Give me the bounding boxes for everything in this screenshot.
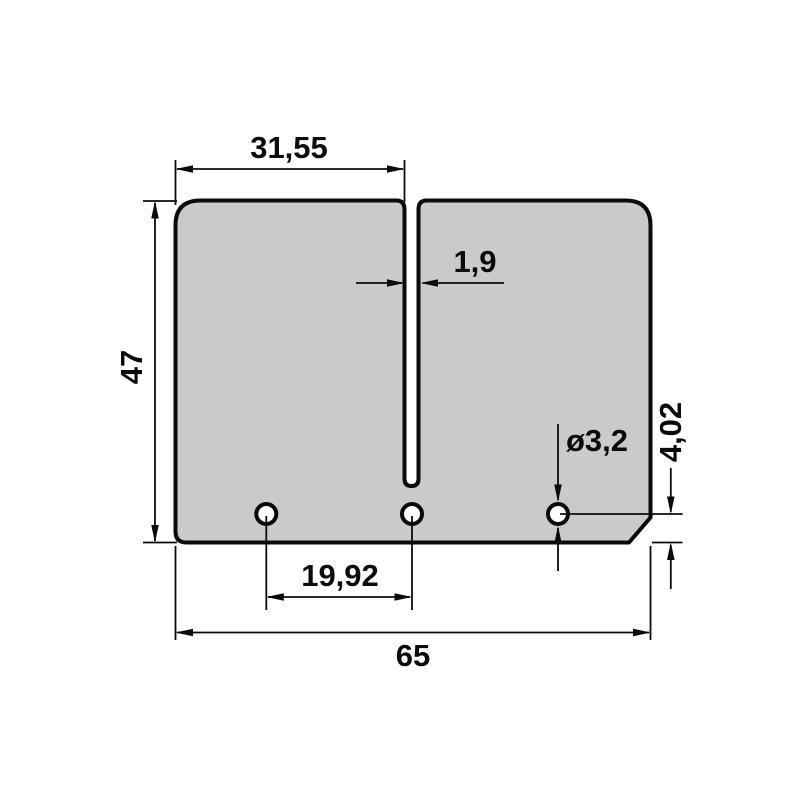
svg-text:31,55: 31,55 (250, 130, 328, 165)
svg-text:65: 65 (396, 638, 430, 673)
svg-text:4,02: 4,02 (653, 402, 688, 462)
svg-text:47: 47 (114, 350, 149, 384)
svg-text:19,92: 19,92 (301, 558, 379, 593)
svg-text:1,9: 1,9 (453, 244, 496, 279)
svg-text:ø3,2: ø3,2 (566, 423, 628, 458)
